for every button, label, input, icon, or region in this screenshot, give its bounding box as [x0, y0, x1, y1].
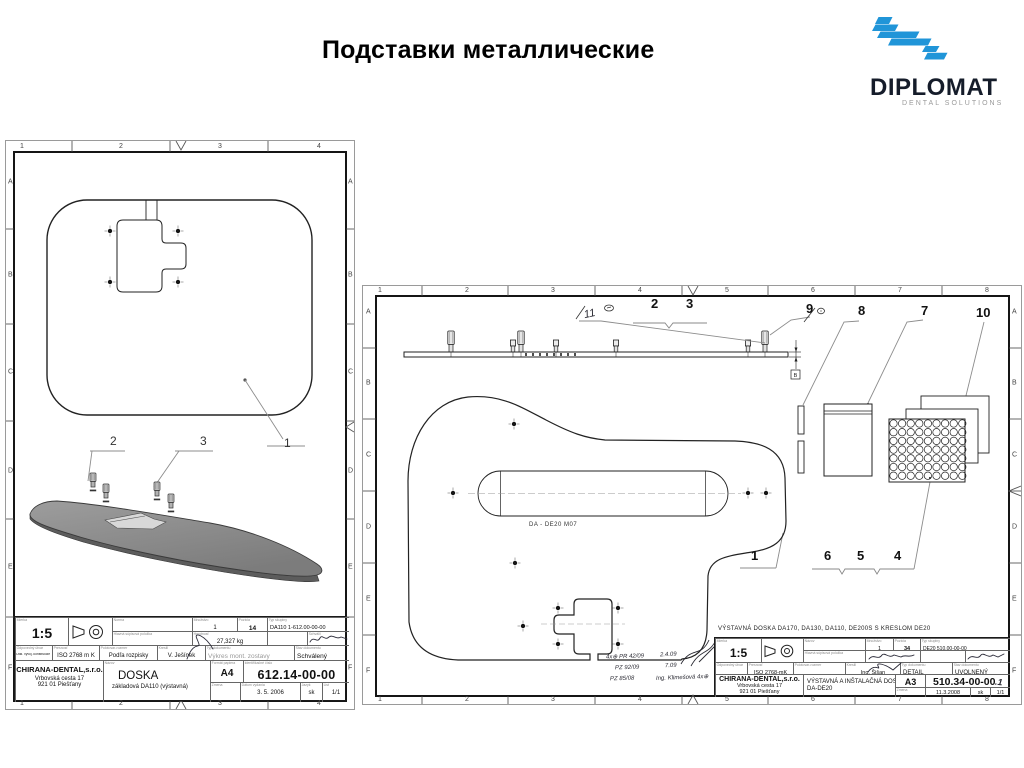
- callout-9: 9: [806, 302, 813, 315]
- tb-type: Typ skupiny DA110 1-612.00-00-00: [267, 617, 349, 631]
- grid-col-label: 5: [725, 287, 729, 294]
- tb-company: CHIRANA-DENTAL,s.r.o. Vrbovská cesta 17 …: [715, 674, 803, 697]
- grid-col-label: 3: [218, 143, 222, 150]
- grid-row-label: D: [366, 524, 371, 531]
- a3-plate-view: [408, 397, 786, 660]
- slide: Подставки металлические DIPLOMAT DENTAL …: [0, 0, 1024, 768]
- a3-leader-lines: [579, 317, 984, 574]
- tb-date: 11.3.2008: [925, 687, 970, 697]
- tb-pos: Pozícia 34: [893, 638, 920, 650]
- grid-col-label: 7: [898, 696, 902, 703]
- tb-pos: Pozícia 14: [237, 617, 267, 631]
- tb-sheet: List 1/1: [322, 682, 349, 702]
- grid-row-label: A: [1012, 309, 1017, 316]
- note-a1: 4x⊕ PR 42/09: [606, 653, 644, 660]
- grid-col-label: 3: [218, 700, 222, 707]
- drawing-sheet-a3: DA - DE20 M07 B 2 3 9 8 7 10 1 6 5 4 11 …: [362, 285, 1022, 705]
- note-b1: 2.4.09: [660, 652, 677, 659]
- grid-row-label: D: [348, 468, 353, 475]
- grid-row-label: C: [8, 369, 13, 376]
- bubble-mat-grid: [890, 420, 966, 480]
- note-b2: 7.09: [665, 663, 677, 670]
- grid-col-label: 2: [465, 696, 469, 703]
- tb-part-title: VÝSTAVNÁ A INŠTALAČNÁ DOSKA DA-DE20: [803, 674, 895, 697]
- grid-row-label: C: [348, 369, 353, 376]
- a4-leader-lines: [88, 378, 305, 487]
- projection-symbol-icon: [762, 639, 802, 661]
- a3-title-block: Mierka 1:5 Názov Hlavná súpisová položka…: [714, 637, 1009, 696]
- grid-col-label: 3: [551, 696, 555, 703]
- tb-scale: Mierka 1:5: [715, 638, 761, 662]
- tb-company: CHIRANA-DENTAL,s.r.o. Vrbovská cesta 17 …: [15, 660, 103, 702]
- grid-col-label: 6: [811, 287, 815, 294]
- grid-row-label: D: [8, 468, 13, 475]
- callout-5: 5: [857, 549, 864, 562]
- grid-row-label: B: [366, 380, 371, 387]
- grid-row-label: E: [8, 564, 13, 571]
- tb-status: Stav dokumentu UVOLNENÝ: [952, 662, 1010, 674]
- grid-row-label: A: [366, 309, 371, 316]
- grid-col-label: 3: [551, 287, 555, 294]
- note-b3: Ing. Klimešová 4x⊕: [656, 674, 709, 682]
- grid-row-label: F: [8, 665, 12, 672]
- tb-date: Dátum vydania 3. 5. 2006: [240, 682, 300, 702]
- grid-row-label: E: [366, 596, 371, 603]
- tb-number: Identifikačné číslo 612.14-00-00: [243, 660, 349, 682]
- grid-col-label: 8: [985, 287, 989, 294]
- a4-iso-view: [30, 473, 322, 582]
- tb-name-cap: Názov: [803, 638, 865, 650]
- callout-10: 10: [976, 306, 990, 319]
- callout-2: 2: [110, 435, 117, 447]
- callout-3: 3: [200, 435, 207, 447]
- callout-6: 6: [824, 549, 831, 562]
- callout-7: 7: [921, 304, 928, 317]
- callout-2: 2: [651, 297, 658, 310]
- handwritten-marks: [576, 305, 825, 322]
- tb-qty: Množstvo 1: [865, 638, 893, 650]
- grid-col-label: 1: [20, 700, 24, 707]
- tb-projection: [761, 638, 803, 662]
- tb-sign-1: [267, 631, 307, 645]
- grid-col-label: 5: [725, 696, 729, 703]
- tb-blank: Polotovar-rozmer: [793, 662, 845, 674]
- grid-col-label: 4: [638, 287, 642, 294]
- grid-row-label: B: [1012, 380, 1017, 387]
- callout-11-handwritten: 11: [583, 308, 596, 321]
- tb-tolerance: Presnosť ISO 2768-mK: [747, 662, 793, 674]
- slot-label: DA - DE20 M07: [529, 522, 577, 528]
- grid-row-label: B: [348, 272, 353, 279]
- tb-part-title: Názov DOSKA základová DA110 (výstavná): [103, 660, 210, 702]
- grid-row-label: F: [366, 668, 370, 675]
- note-a3: PZ 85/08: [610, 676, 635, 683]
- callout-3: 3: [686, 297, 693, 310]
- tb-main-item: Hlavná súpisová položka: [112, 631, 192, 645]
- tb-header-line: VÝSTAVNÁ DOSKA DA170, DA130, DA110, DE20…: [718, 626, 931, 632]
- tb-sheet: 1/1: [990, 687, 1010, 697]
- grid-row-label: B: [8, 272, 13, 279]
- grid-row-label: F: [348, 665, 352, 672]
- tb-number-suffix: .1: [995, 678, 1003, 687]
- tb-sign-2: [920, 650, 965, 662]
- diplomat-logo: DIPLOMAT DENTAL SOLUTIONS: [856, 12, 1008, 114]
- drawing-sheet-a4: 2 3 1 Mierka 1:5 Norma Hlavná súpi: [5, 140, 355, 710]
- grid-col-label: 7: [898, 287, 902, 294]
- a3-side-view: [404, 331, 801, 379]
- tb-doctype: Typ dokumentu DETAIL: [900, 662, 952, 674]
- grid-col-label: 1: [378, 696, 382, 703]
- callout-1: 1: [751, 549, 758, 562]
- note-a2: PZ 92/09: [615, 665, 640, 672]
- tb-format: Formát papiera A4: [210, 660, 243, 682]
- grid-row-label: C: [1012, 452, 1017, 459]
- page-title: Подставки металлические: [322, 36, 654, 65]
- logo-brand: DIPLOMAT: [870, 74, 1008, 102]
- grid-col-label: 2: [119, 143, 123, 150]
- grid-col-label: 2: [119, 700, 123, 707]
- grid-col-label: 1: [20, 143, 24, 150]
- tb-format: A3: [895, 674, 925, 687]
- a4-top-view: [47, 200, 312, 415]
- projection-symbol-icon: [69, 618, 111, 644]
- tb-main-item: Hlavná súpisová položka: [803, 650, 865, 662]
- grid-col-label: 4: [638, 696, 642, 703]
- grid-col-label: 4: [317, 143, 321, 150]
- tb-status: Stav dokumentu Schválený: [294, 645, 349, 660]
- callout-1: 1: [284, 437, 291, 449]
- approval-signature: [309, 633, 349, 645]
- tb-lang: Jazyk sk: [300, 682, 322, 702]
- grid-col-label: 2: [465, 287, 469, 294]
- grid-row-label: D: [1012, 524, 1017, 531]
- grid-row-label: A: [8, 179, 13, 186]
- grid-row-label: C: [366, 452, 371, 459]
- grid-row-label: E: [348, 564, 353, 571]
- tb-scale: Mierka 1:5: [15, 617, 68, 645]
- a4-title-block: Mierka 1:5 Norma Hlavná súpisová položka…: [14, 616, 346, 701]
- tb-type: Typ skupiny DE20 510.00-00-00: [920, 638, 1010, 650]
- grid-row-label: A: [348, 179, 353, 186]
- tb-tolerance: Presnosť ISO 2768 m K: [52, 645, 99, 660]
- grid-col-label: 6: [811, 696, 815, 703]
- callout-8: 8: [858, 304, 865, 317]
- tb-norma: Norma: [112, 617, 192, 631]
- sign-scribble-3: [865, 660, 905, 674]
- sign-scribble-2: [967, 651, 1007, 662]
- grid-col-label: 4: [317, 700, 321, 707]
- grid-row-label: F: [1012, 668, 1016, 675]
- check-signature: [183, 629, 219, 661]
- tb-number: 510.34-00-00.1: [925, 674, 1010, 687]
- tb-dept: Odpovedný útvar: [715, 662, 747, 674]
- grid-col-label: 8: [985, 696, 989, 703]
- grid-row-label: E: [1012, 596, 1017, 603]
- thickness-dim-label: B: [794, 373, 798, 379]
- tb-change: Zmena: [210, 682, 240, 702]
- callout-4: 4: [894, 549, 901, 562]
- tb-projection: [68, 617, 112, 645]
- tb-dept: Odpovedný útvar Odd. vývoj. konštrukcie: [15, 645, 52, 660]
- tb-blank: Polotovar-rozmer Podľa rozpisky: [99, 645, 157, 660]
- a3-detail-items: [798, 396, 989, 482]
- logo-tagline: DENTAL SOLUTIONS: [902, 100, 1003, 107]
- grid-col-label: 1: [378, 287, 382, 294]
